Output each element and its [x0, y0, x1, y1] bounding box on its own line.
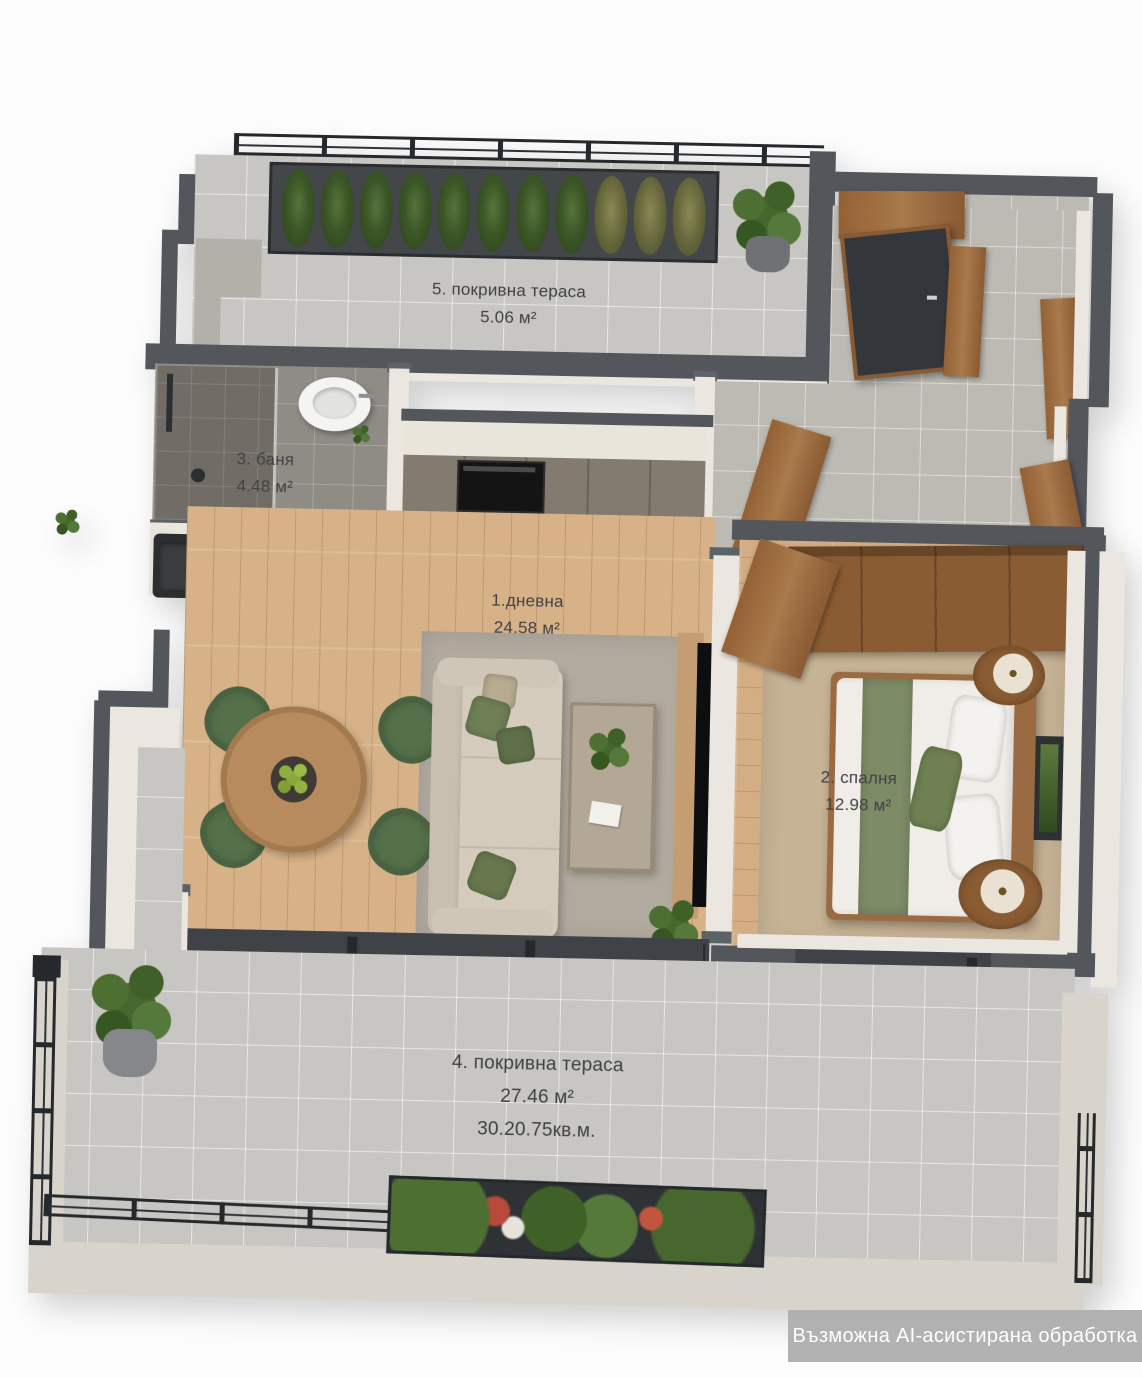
kitchen-cabinets: [402, 455, 705, 517]
door-handle: [927, 296, 937, 300]
upper-terrace-planter: [268, 162, 720, 263]
room-area: 12.98 м²: [778, 790, 939, 820]
conifer-plant-olive: [633, 176, 668, 255]
watermark-text: Възможна AI-асистирана обработка: [793, 1325, 1138, 1348]
conifer-plant: [437, 172, 472, 251]
living-label: 1.дневна 24.58 м²: [447, 586, 608, 643]
conifer-plant-olive: [672, 177, 707, 256]
wall-art: [1039, 744, 1059, 832]
sofa-pillow-green: [495, 725, 536, 766]
bathroom-label: 3. баня 4.48 м²: [175, 444, 356, 502]
terrace-ledge: [194, 238, 222, 351]
watermark: Възможна AI-асистирана обработка: [788, 1310, 1142, 1362]
room-name: 2. спалня: [779, 763, 940, 793]
shower-bar: [166, 374, 173, 432]
terrace-railing-right: [1074, 1113, 1096, 1283]
room-name: 3. баня: [175, 444, 356, 475]
side-terrace-strip: [133, 747, 185, 954]
room-area: 5.06 м²: [378, 301, 639, 333]
conifer-plant: [554, 175, 589, 254]
conifer-plant: [515, 174, 550, 253]
wall: [1089, 193, 1113, 407]
conifer-plant: [476, 173, 511, 252]
book: [588, 801, 621, 828]
wardrobe: [788, 545, 1087, 653]
apartment-plan: 5. покривна тераса 5.06 м²: [0, 0, 1142, 1378]
sink-faucet: [359, 394, 375, 398]
plant-pot: [745, 236, 790, 273]
conifer-plant: [359, 171, 394, 250]
railing-post: [33, 955, 61, 978]
conifer-plant-olive: [594, 176, 629, 255]
wall: [160, 230, 179, 356]
conifer-plant: [398, 172, 433, 251]
wall: [152, 629, 169, 699]
small-plant: [52, 507, 83, 538]
floorplan-render: 5. покривна тераса 5.06 м²: [0, 0, 1142, 1378]
hall-wood-panel: [943, 245, 986, 377]
wall-face: [1073, 211, 1091, 401]
room-area: 24.58 м²: [447, 613, 608, 643]
bedroom-label: 2. спалня 12.98 м²: [778, 763, 939, 820]
plant-pot: [102, 1029, 157, 1078]
room-area: 4.48 м²: [175, 471, 356, 502]
wall: [178, 174, 195, 244]
room-name: 1.дневна: [447, 586, 608, 616]
conifer-plant: [320, 170, 355, 249]
room-area-alt: 30.20.75кв.м.: [391, 1111, 682, 1150]
flower-planter: [386, 1175, 767, 1267]
conifer-plant: [281, 169, 316, 248]
lower-terrace-label: 4. покривна тераса 27.46 м² 30.20.75кв.м…: [391, 1045, 683, 1150]
upper-terrace-label: 5. покривна тераса 5.06 м²: [378, 274, 639, 333]
